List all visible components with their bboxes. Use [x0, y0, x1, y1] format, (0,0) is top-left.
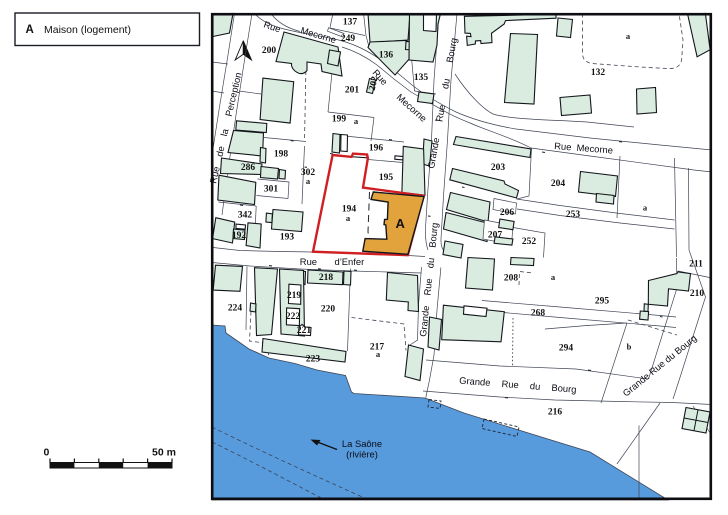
- svg-text:208: 208: [504, 274, 519, 284]
- svg-text:A: A: [26, 24, 34, 36]
- svg-text:206: 206: [500, 208, 515, 218]
- svg-text:210: 210: [690, 289, 705, 299]
- svg-text:199: 199: [332, 115, 347, 125]
- svg-text:A: A: [396, 216, 406, 231]
- svg-text:295: 295: [595, 297, 610, 307]
- svg-text:219: 219: [287, 291, 302, 301]
- svg-text:223: 223: [306, 355, 321, 365]
- svg-text:(rivière): (rivière): [346, 449, 378, 460]
- svg-text:50 m: 50 m: [152, 447, 176, 459]
- svg-text:218: 218: [319, 273, 334, 283]
- svg-text:196: 196: [369, 144, 384, 154]
- svg-text:192: 192: [232, 231, 247, 241]
- svg-text:d’Enfer: d’Enfer: [335, 256, 365, 267]
- svg-text:132: 132: [591, 68, 606, 78]
- svg-text:Rue: Rue: [300, 256, 317, 267]
- svg-text:211: 211: [689, 260, 703, 270]
- svg-text:135: 135: [414, 73, 429, 83]
- svg-text:268: 268: [531, 309, 546, 319]
- svg-text:216: 216: [548, 408, 563, 418]
- svg-text:204: 204: [551, 179, 566, 189]
- svg-text:b: b: [627, 342, 632, 352]
- svg-text:193: 193: [280, 233, 295, 243]
- svg-text:198: 198: [274, 150, 289, 160]
- svg-text:286: 286: [241, 163, 256, 173]
- svg-text:203: 203: [491, 163, 506, 173]
- svg-text:Maison (logement): Maison (logement): [44, 24, 131, 36]
- svg-text:294: 294: [559, 344, 574, 354]
- svg-text:252: 252: [522, 237, 537, 247]
- svg-text:224: 224: [228, 304, 243, 314]
- svg-text:301: 301: [264, 185, 279, 195]
- svg-text:249: 249: [341, 34, 356, 44]
- svg-text:195: 195: [379, 173, 394, 183]
- svg-text:201: 201: [345, 86, 360, 96]
- svg-text:222: 222: [286, 312, 301, 322]
- svg-text:137: 137: [343, 18, 358, 28]
- svg-text:342: 342: [238, 211, 253, 221]
- svg-text:221: 221: [297, 326, 312, 336]
- svg-text:0: 0: [44, 447, 50, 459]
- svg-text:La Saône: La Saône: [342, 438, 382, 449]
- svg-text:200: 200: [262, 46, 277, 56]
- svg-text:253: 253: [566, 210, 581, 220]
- svg-text:136: 136: [379, 51, 394, 61]
- svg-text:207: 207: [488, 231, 503, 241]
- svg-text:220: 220: [321, 305, 336, 315]
